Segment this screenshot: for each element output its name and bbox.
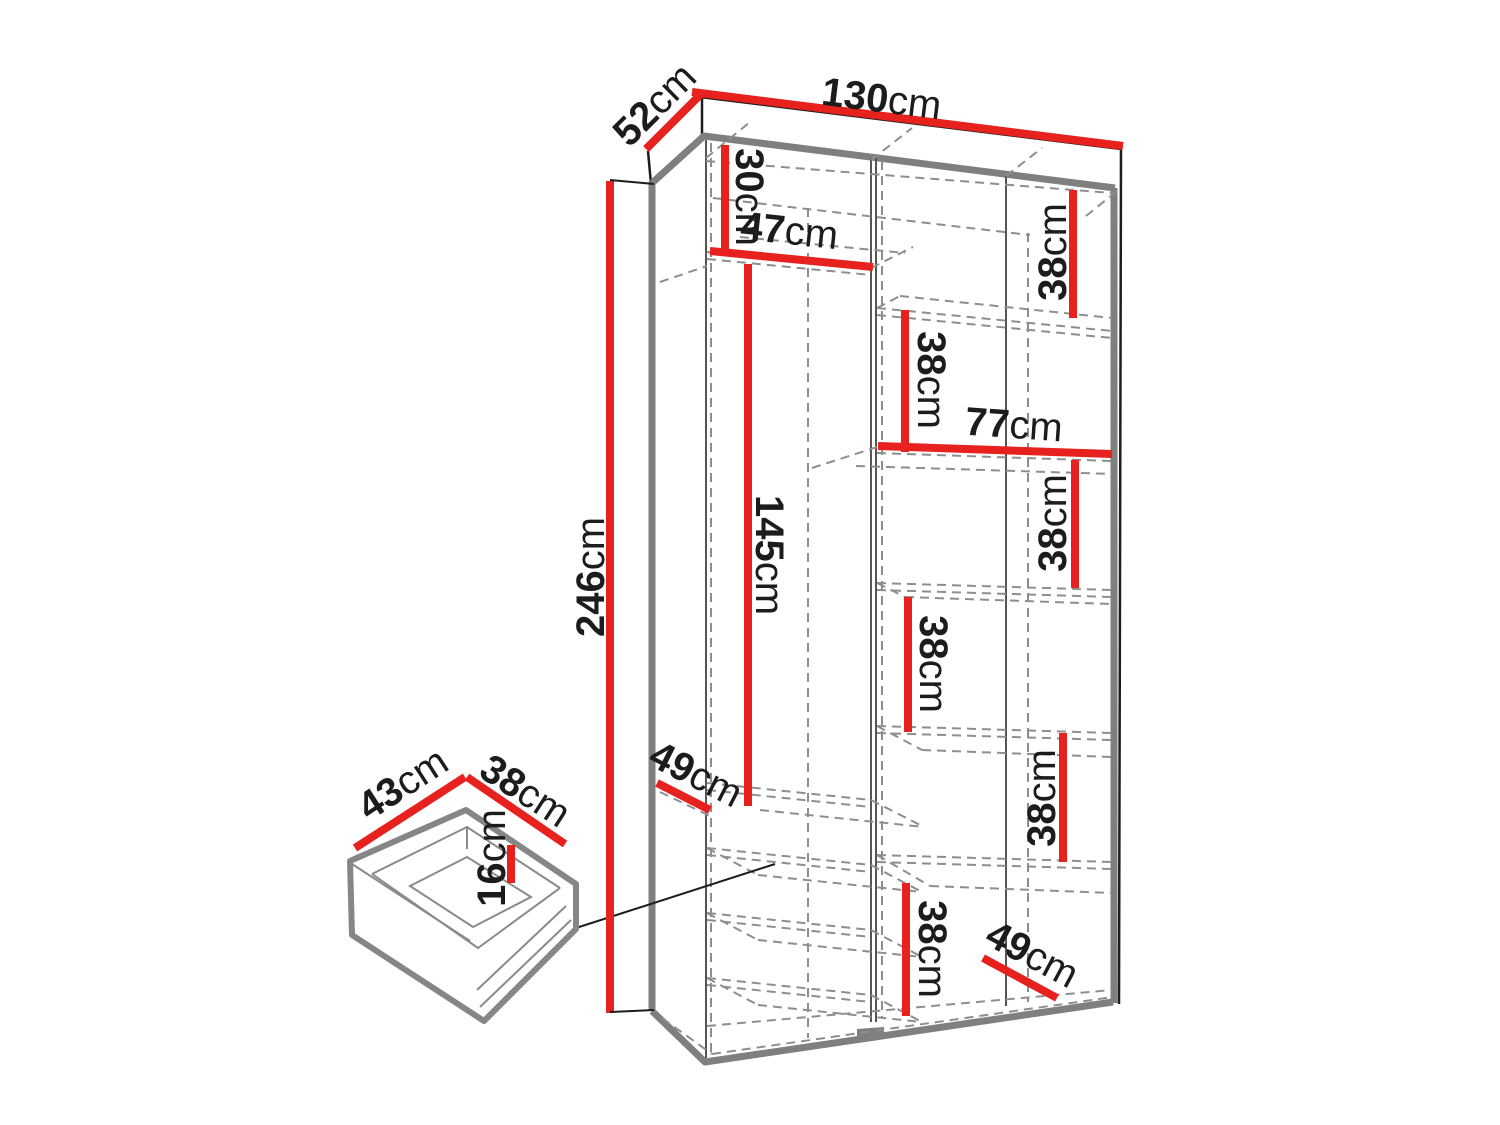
dim-overall-height-label: 246cm: [569, 517, 613, 637]
drawer-pointer-line: [576, 864, 775, 928]
drawer-front-top-edge: [352, 864, 470, 941]
dim-drawer-height-label: 16cm: [470, 809, 514, 907]
right-outer-edge: [1119, 149, 1121, 1004]
dim-shelf38-label-4: 38cm: [911, 615, 955, 713]
wardrobe-shelves: [660, 237, 1113, 1054]
drawer-outer-outline: [350, 810, 576, 1021]
dimension-labels: 130cm 52cm 246cm 30cm 47cm 145cm 77cm 38…: [350, 55, 1086, 998]
dim-right-width-label: 77cm: [964, 400, 1065, 451]
dim-hanging-height-label: 145cm: [747, 495, 791, 615]
dim-overall-width-label: 130cm: [819, 70, 944, 128]
dim-shelf38-label-1: 38cm: [1031, 203, 1075, 301]
drawer-inner-rim-front: [372, 874, 560, 948]
diagram-canvas: 130cm 52cm 246cm 30cm 47cm 145cm 77cm 38…: [0, 0, 1500, 1125]
dim-shelf38-label-6: 38cm: [910, 900, 954, 998]
left-outer-edge-top: [648, 151, 651, 184]
drawer-detail: [350, 810, 576, 1021]
drawer-rail-1: [480, 920, 571, 1007]
dim-shelf38-label-3: 38cm: [1031, 474, 1075, 572]
furniture-dimension-diagram: 130cm 52cm 246cm 30cm 47cm 145cm 77cm 38…: [0, 0, 1500, 1125]
dim-left-width-label: 47cm: [738, 204, 840, 258]
dim-right-width-line: [878, 446, 1112, 454]
dim-shelf38-label-5: 38cm: [1020, 749, 1064, 847]
dim-shelf38-label-2: 38cm: [909, 331, 953, 429]
